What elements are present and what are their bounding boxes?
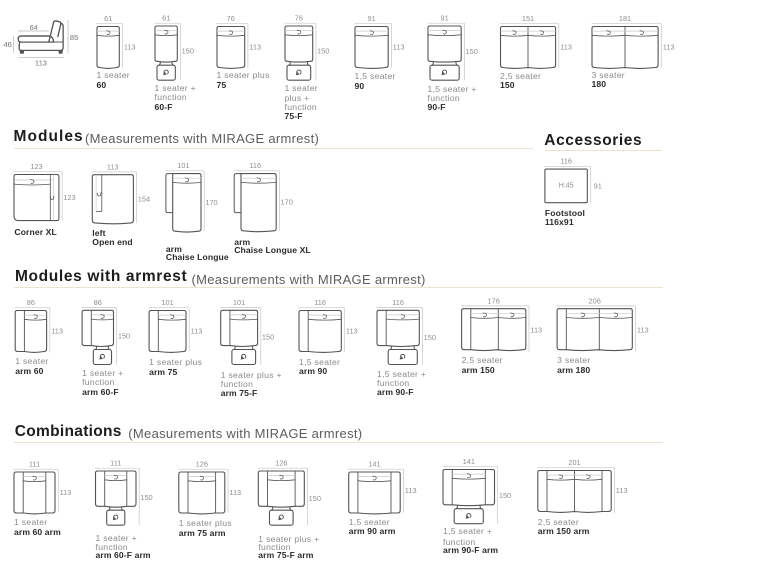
svg-text:150: 150 [424,333,436,342]
svg-text:141: 141 [463,457,475,466]
svg-text:150: 150 [118,331,130,340]
svg-text:64: 64 [30,23,38,32]
svg-text:150: 150 [499,491,511,500]
svg-text:61: 61 [162,14,170,23]
svg-text:113: 113 [191,327,203,336]
svg-text:61: 61 [104,14,112,23]
svg-text:86: 86 [27,298,35,307]
svg-text:170: 170 [205,198,217,207]
svg-text:113: 113 [124,43,136,52]
svg-text:101: 101 [161,298,173,307]
svg-text:116: 116 [560,157,572,166]
svg-text:76: 76 [227,14,235,23]
svg-text:181: 181 [619,14,631,23]
svg-text:91: 91 [594,181,602,190]
svg-text:113: 113 [249,43,261,52]
svg-text:113: 113 [405,486,417,495]
svg-text:123: 123 [63,193,75,202]
svg-text:150: 150 [466,47,478,56]
svg-text:150: 150 [262,332,274,341]
svg-text:113: 113 [229,488,241,497]
svg-text:91: 91 [440,14,448,23]
svg-text:91: 91 [367,14,375,23]
svg-text:113: 113 [107,162,119,171]
svg-text:126: 126 [275,459,287,468]
svg-text:113: 113 [663,43,675,52]
svg-text:154: 154 [138,194,150,203]
svg-text:151: 151 [522,14,534,23]
svg-text:46: 46 [4,40,12,49]
svg-text:86: 86 [94,298,102,307]
svg-text:150: 150 [317,47,329,56]
svg-text:150: 150 [140,493,152,502]
svg-text:111: 111 [110,459,121,468]
svg-text:201: 201 [568,458,580,467]
svg-text:116: 116 [392,298,404,307]
svg-text:85: 85 [70,33,78,42]
svg-text:141: 141 [368,460,380,469]
svg-text:111: 111 [29,460,40,469]
svg-text:176: 176 [488,296,500,305]
svg-text:101: 101 [177,161,189,170]
svg-text:150: 150 [182,47,194,56]
svg-text:101: 101 [233,298,245,307]
svg-text:150: 150 [309,494,321,503]
svg-text:76: 76 [295,14,303,23]
svg-text:113: 113 [393,43,405,52]
svg-text:170: 170 [281,198,293,207]
svg-text:113: 113 [35,59,47,68]
svg-text:123: 123 [30,162,42,171]
svg-text:116: 116 [314,298,326,307]
svg-text:H:45: H:45 [559,182,574,189]
svg-text:113: 113 [637,326,649,335]
svg-text:113: 113 [51,327,63,336]
svg-text:116: 116 [249,161,261,170]
svg-text:113: 113 [560,43,572,52]
svg-text:113: 113 [530,326,542,335]
svg-text:126: 126 [196,460,208,469]
svg-text:113: 113 [346,327,358,336]
svg-text:113: 113 [616,486,628,495]
svg-text:113: 113 [60,488,72,497]
svg-text:206: 206 [589,296,601,305]
